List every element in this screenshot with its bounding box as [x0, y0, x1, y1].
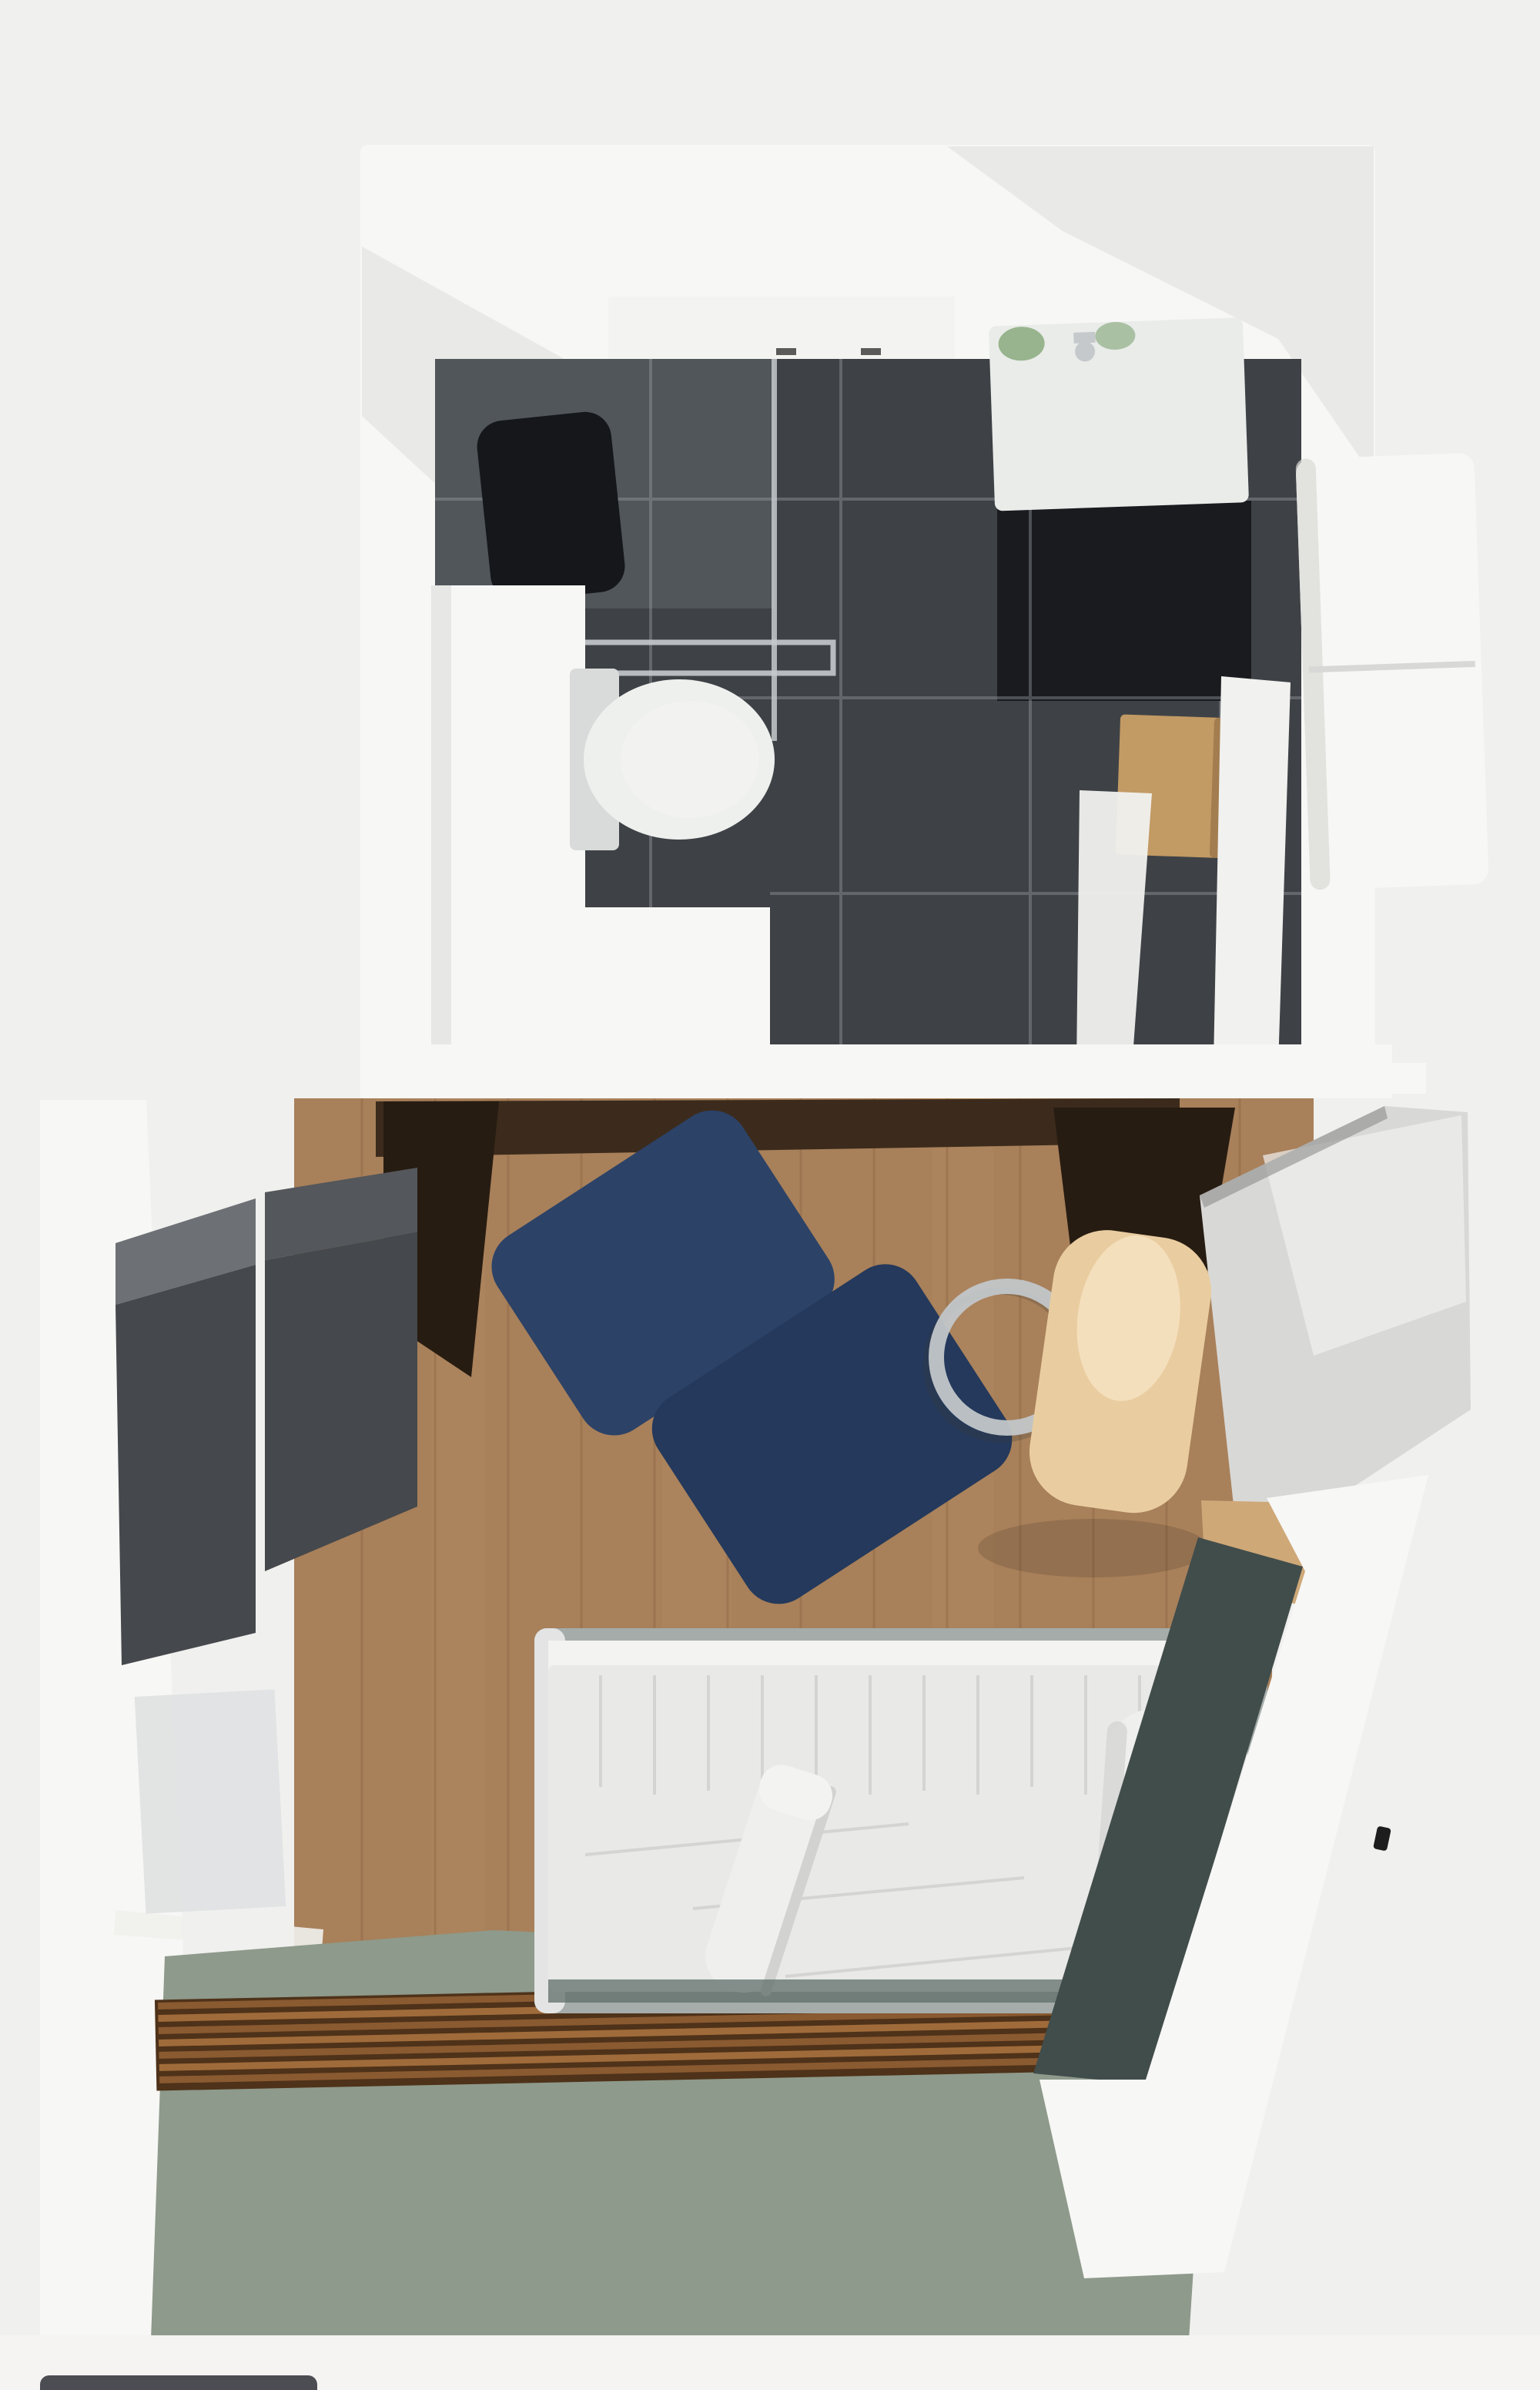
sink-vanity: [989, 317, 1249, 511]
shower-glass-edge: [772, 359, 777, 741]
scene-wrapper: [0, 0, 1540, 2390]
outside-bench: [1295, 453, 1488, 890]
toilet-seat: [621, 701, 759, 818]
towel-on-door: [1214, 676, 1291, 1066]
chair-shadow: [978, 1519, 1209, 1577]
divider-wall-right: [1263, 1063, 1426, 1094]
shower-scan-hole: [474, 409, 628, 603]
cabinet-handle: [861, 348, 881, 355]
toilet-wall-column: [431, 585, 585, 1048]
bathroom: [360, 145, 1375, 1088]
under-sink-shadow: [997, 501, 1251, 701]
toilet-wall-shade: [431, 585, 451, 1048]
apartment-scan-image: [0, 0, 1540, 2390]
wall-poster: [135, 1689, 286, 1913]
divider-wall: [360, 1044, 1392, 1098]
bottom-dark-bar: [40, 2375, 317, 2390]
cabinet-handle: [776, 348, 796, 355]
wardrobe-body: [115, 1265, 256, 1665]
